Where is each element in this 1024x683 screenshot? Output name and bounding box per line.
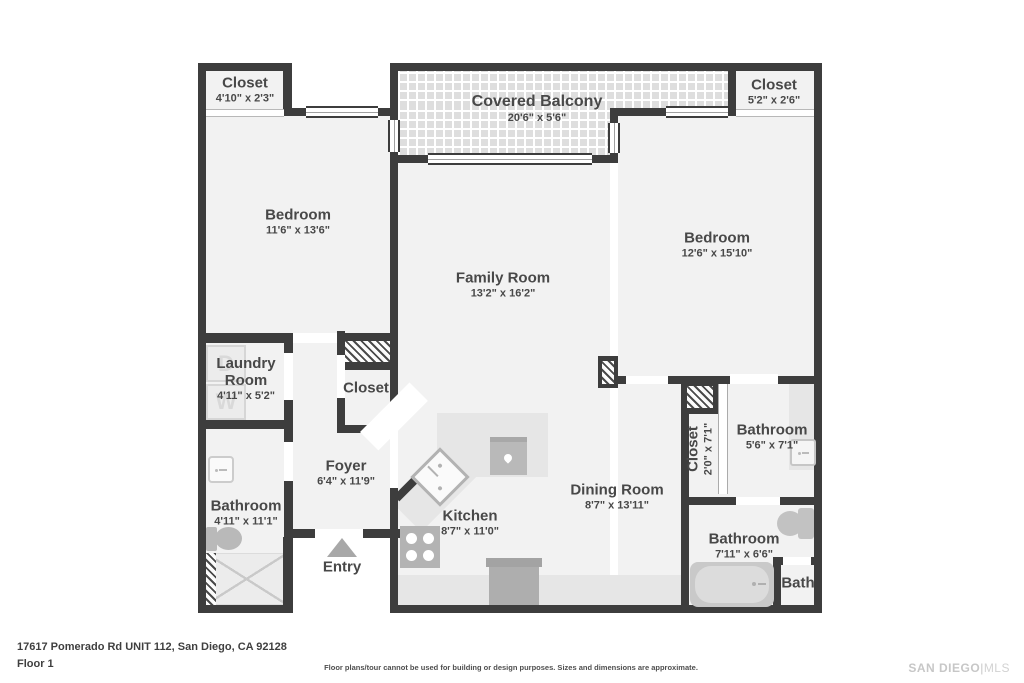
window	[608, 123, 620, 153]
floor-plan: D W Closet 4'10" x 2'3"	[0, 0, 1024, 683]
room-name: Covered Balcony	[472, 93, 603, 111]
sliding-glass-door	[428, 153, 592, 165]
toilet-bowl	[215, 527, 242, 550]
bottom-counter	[398, 575, 683, 605]
closet-sliding-door	[718, 384, 728, 494]
wall	[198, 333, 293, 343]
room-dims: 8'7" x 13'11"	[570, 499, 663, 513]
wall	[284, 333, 293, 355]
room-name: Bathroom	[737, 422, 808, 439]
room-label-bedroom-left: Bedroom 11'6" x 13'6"	[265, 207, 331, 238]
room-dims: 4'11" x 5'2"	[206, 389, 286, 403]
wall	[681, 380, 689, 613]
room-label-closet-tl: Closet 4'10" x 2'3"	[216, 75, 274, 106]
wall	[773, 557, 781, 613]
wall	[614, 376, 626, 384]
room-label-closet-center: Closet	[343, 380, 389, 397]
room-name: Closet	[685, 423, 702, 475]
room-dims: 2'0" x 7'1"	[702, 423, 716, 475]
bathtub	[690, 562, 774, 607]
door-opening	[293, 333, 337, 343]
room-label-closet-tr: Closet 5'2" x 2'6"	[748, 77, 800, 108]
wall	[198, 63, 292, 71]
room-name: Bathroom	[211, 498, 282, 515]
floor-label: Floor 1	[17, 658, 54, 670]
shower-hatch-strip	[206, 553, 216, 605]
room-name: Closet	[216, 75, 274, 92]
room-dims: 11'6" x 13'6"	[265, 224, 331, 238]
wall	[337, 331, 345, 355]
room-name: Bedroom	[265, 207, 331, 224]
entry-arrow-icon	[327, 538, 357, 557]
room-dims: 8'7" x 11'0"	[441, 525, 499, 539]
room-dims: 13'2" x 16'2"	[456, 287, 550, 301]
wall	[283, 537, 293, 613]
address-line: 17617 Pomerado Rd UNIT 112, San Diego, C…	[17, 641, 287, 653]
closet-hatch	[345, 341, 390, 362]
mls-logo: SAN DIEGO|MLS	[908, 661, 1010, 675]
room-dims: 4'10" x 2'3"	[216, 92, 274, 106]
disclaimer-text: Floor plans/tour cannot be used for buil…	[324, 663, 698, 672]
room-name: Bathroom	[709, 531, 780, 548]
room-label-bedroom-right: Bedroom 12'6" x 15'10"	[682, 230, 753, 261]
room-label-bathroom-bottom-right: Bathroom 7'11" x 6'6"	[709, 531, 780, 562]
entry-label: Entry	[323, 559, 361, 576]
room-dims: 5'6" x 7'1"	[737, 439, 808, 453]
shower	[206, 553, 287, 605]
room-dims: 7'11" x 6'6"	[709, 548, 780, 562]
room-dims: 6'4" x 11'9"	[317, 475, 375, 489]
closet-door	[736, 109, 814, 117]
room-name: Foyer	[317, 458, 375, 475]
room-label-laundry: Laundry Room 4'11" x 5'2"	[206, 355, 286, 403]
room-name: Kitchen	[441, 508, 499, 525]
room-name: Bedroom	[682, 230, 753, 247]
room-name: Family Room	[456, 270, 550, 287]
entry-door-opening	[315, 530, 363, 538]
door-opening	[730, 374, 778, 384]
stove	[400, 526, 440, 568]
room-name: Laundry Room	[206, 355, 286, 389]
window	[306, 106, 378, 118]
wall	[814, 63, 822, 613]
wall	[198, 605, 293, 613]
door-opening	[626, 376, 668, 384]
window	[388, 120, 400, 152]
room-name: Bath	[781, 575, 814, 592]
mls-logo-name: SAN DIEGO	[908, 661, 980, 675]
room-label-bathroom-mid-right: Bathroom 5'6" x 7'1"	[737, 422, 808, 453]
room-label-bath: Bath	[781, 575, 814, 592]
room-label-dining: Dining Room 8'7" x 13'11"	[570, 482, 663, 513]
door-opening	[284, 442, 293, 481]
room-dims: 4'11" x 11'1"	[211, 515, 282, 529]
wall	[390, 488, 398, 613]
room-label-kitchen: Kitchen 8'7" x 11'0"	[441, 508, 499, 539]
room-dims: 5'2" x 2'6"	[748, 94, 800, 108]
closet-pillar-hatch	[687, 386, 713, 408]
room-name: Closet	[748, 77, 800, 94]
room-label-foyer: Foyer 6'4" x 11'9"	[317, 458, 375, 489]
room-name: Entry	[323, 559, 361, 576]
wall	[337, 362, 398, 370]
room-label-closet-right: Closet 2'0" x 7'1"	[685, 423, 716, 475]
door-opening	[736, 498, 780, 505]
pillar-hatch	[602, 361, 614, 384]
room-label-bathroom-left: Bathroom 4'11" x 11'1"	[211, 498, 282, 529]
wall	[337, 333, 398, 341]
dishwasher	[486, 558, 542, 567]
toilet-tank	[798, 508, 814, 539]
wall	[778, 376, 814, 384]
room-name: Closet	[343, 380, 389, 397]
refrigerator	[490, 437, 527, 475]
room-label-balcony: Covered Balcony 20'6" x 5'6"	[472, 93, 603, 125]
window	[666, 106, 728, 118]
room-dims: 12'6" x 15'10"	[682, 247, 753, 261]
dishwasher-body	[489, 567, 539, 605]
closet-door	[206, 109, 284, 117]
room-label-family-room: Family Room 13'2" x 16'2"	[456, 270, 550, 301]
sink	[208, 456, 234, 483]
wall	[390, 63, 822, 71]
door-opening	[783, 558, 811, 565]
mls-logo-suffix: MLS	[984, 661, 1010, 675]
wall	[198, 420, 293, 429]
room-dims: 20'6" x 5'6"	[472, 111, 603, 125]
room-name: Dining Room	[570, 482, 663, 499]
